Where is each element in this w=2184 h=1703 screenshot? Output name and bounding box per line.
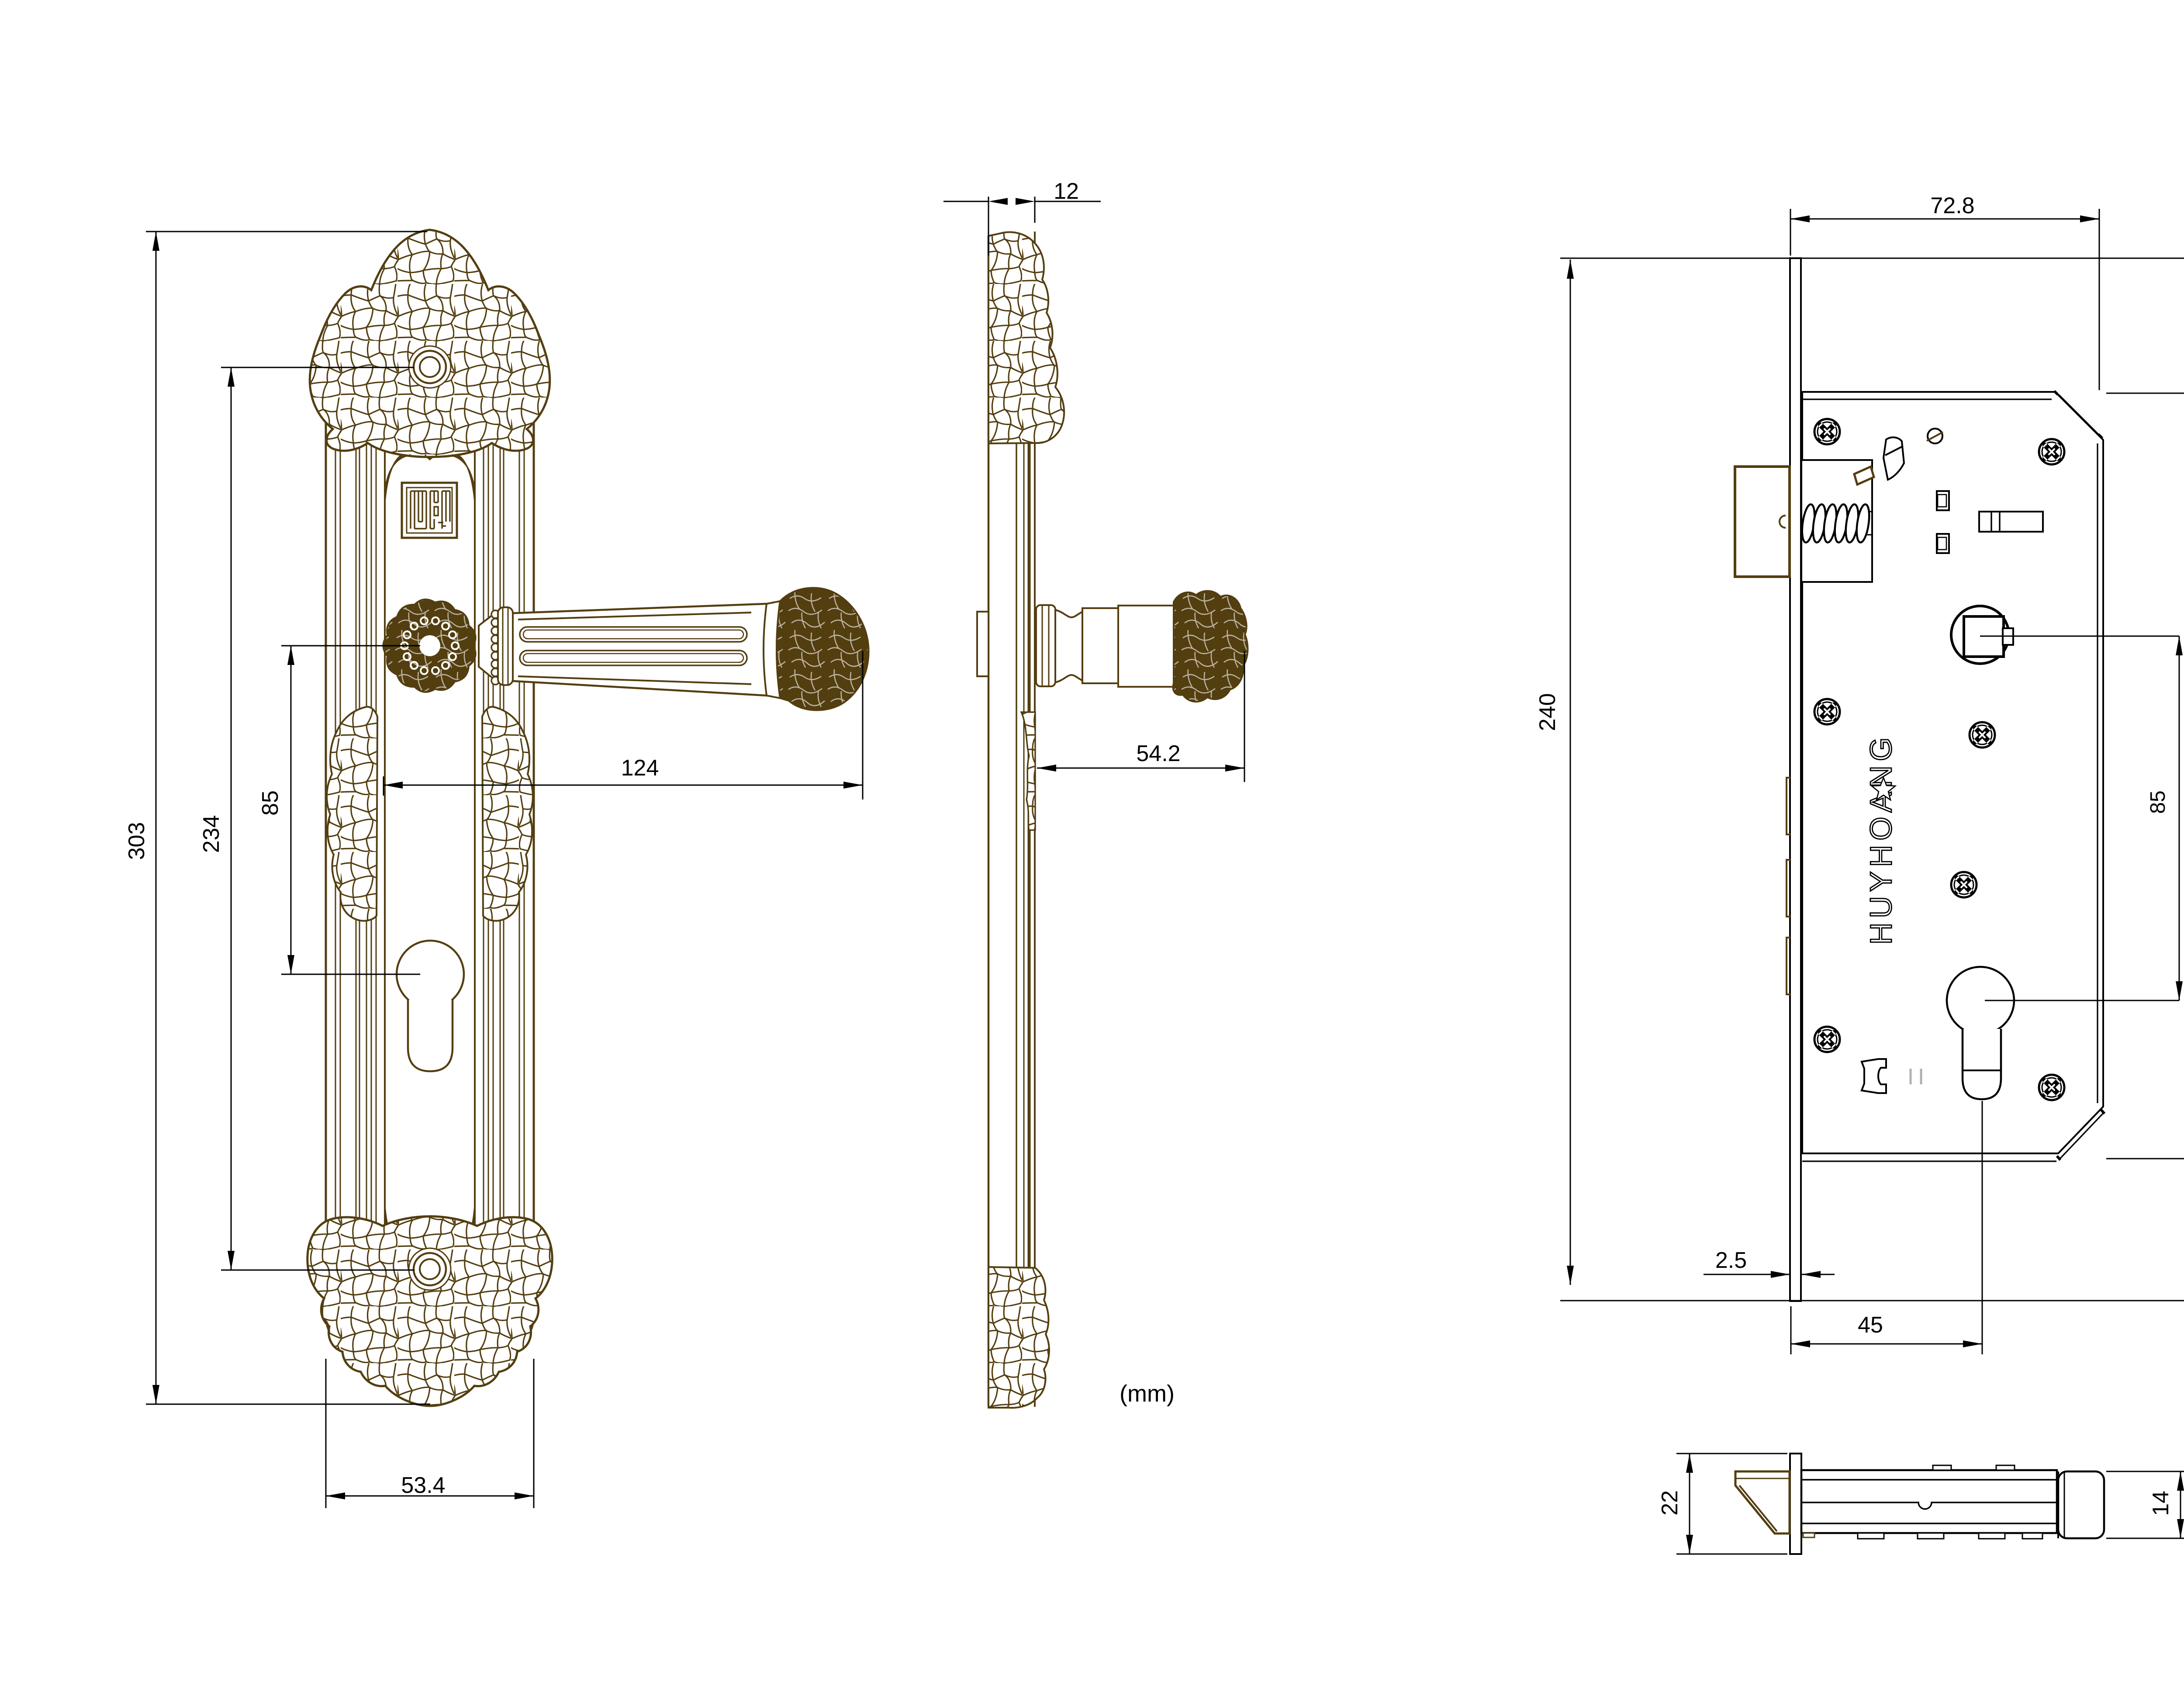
svg-text:85: 85 xyxy=(258,790,283,816)
svg-text:HUYHOANG: HUYHOANG xyxy=(1864,733,1898,945)
svg-text:(mm): (mm) xyxy=(1120,1381,1175,1407)
svg-text:2.5: 2.5 xyxy=(1715,1248,1747,1273)
svg-text:240: 240 xyxy=(1535,693,1560,731)
svg-text:234: 234 xyxy=(199,815,224,853)
svg-text:303: 303 xyxy=(124,822,149,860)
svg-text:12: 12 xyxy=(1054,179,1079,204)
svg-text:54.2: 54.2 xyxy=(1136,741,1180,766)
svg-text:53.4: 53.4 xyxy=(401,1473,445,1498)
svg-text:85: 85 xyxy=(2146,790,2170,813)
svg-text:14: 14 xyxy=(2148,1491,2174,1516)
svg-text:72.8: 72.8 xyxy=(1930,193,1974,218)
svg-text:124: 124 xyxy=(621,755,659,781)
svg-text:45: 45 xyxy=(1858,1312,1883,1338)
svg-text:22: 22 xyxy=(1657,1490,1683,1516)
